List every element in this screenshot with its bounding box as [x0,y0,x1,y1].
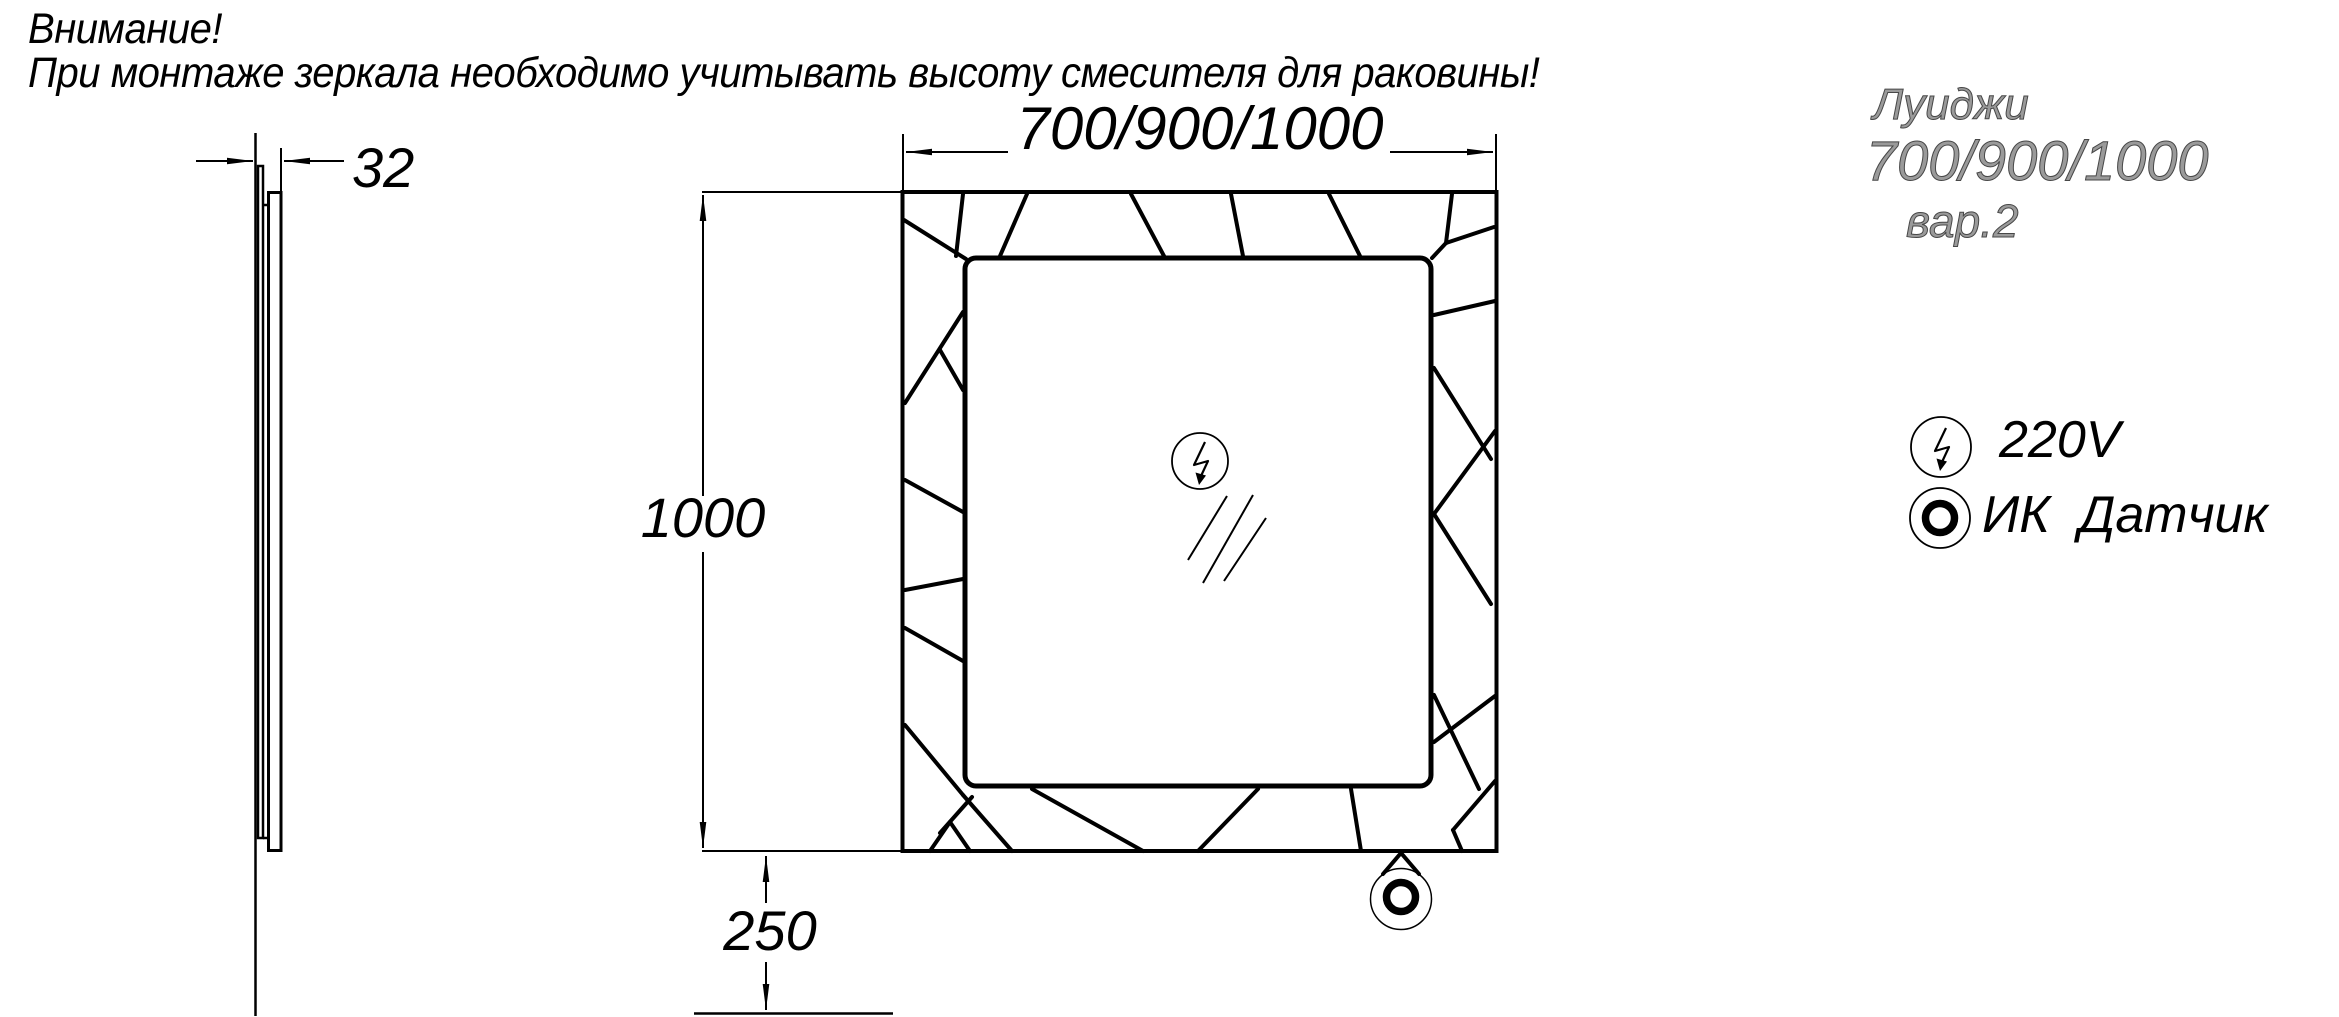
mirror-mounting-drawing: Внимание! При монтаже зеркала необходимо… [0,0,2339,1017]
mirror-front-view [903,192,1497,930]
warning-title: Внимание! [28,8,222,51]
width-dimension-label: 700/900/1000 [1000,99,1400,159]
model-sizes: 700/900/1000 [1866,133,2209,189]
side-view [256,133,282,1016]
model-variant: вар.2 [1906,198,2019,244]
sensor-legend-label: ИК Датчик [1982,489,2268,541]
mirror-glass-profile [258,166,263,838]
legend-power-icon [1911,417,1971,477]
warning-text: При монтаже зеркала необходимо учитывать… [28,52,1539,95]
depth-dimension-label: 32 [352,140,414,196]
bottom-offset-dimension-label: 250 [690,903,850,959]
legend-ir-sensor-icon [1910,488,1970,548]
mirror-box-profile [269,193,282,851]
ir-sensor-marker-icon [1371,853,1432,930]
depth-dimension [196,148,344,192]
height-dimension-label: 1000 [623,490,783,546]
power-legend-label: 220V [1999,414,2120,466]
model-name: Луиджи [1873,83,2029,127]
mirror-inner-panel [965,258,1431,786]
